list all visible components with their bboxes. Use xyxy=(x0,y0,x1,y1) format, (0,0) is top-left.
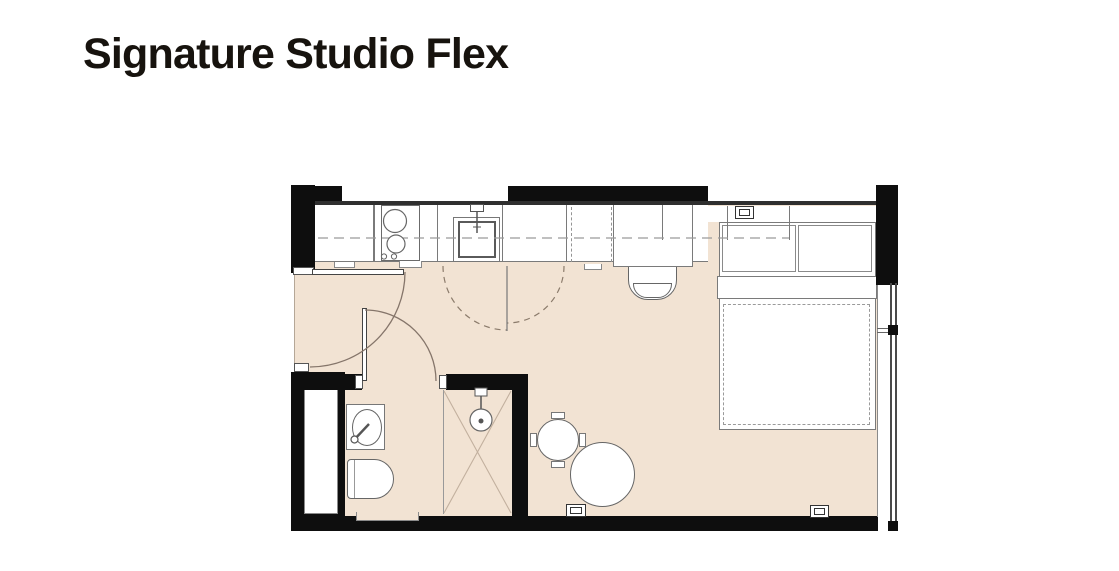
door-jamb xyxy=(294,363,309,372)
window-mullion xyxy=(888,325,898,335)
counter-tab xyxy=(399,261,422,268)
window-mullion xyxy=(888,521,898,531)
bathroom-wall-right xyxy=(512,374,528,520)
bathroom-wall-top-left xyxy=(291,374,362,390)
counter-divider xyxy=(373,205,375,262)
table-tab-north xyxy=(551,412,565,419)
door-jamb xyxy=(439,375,447,389)
table-tab-south xyxy=(551,461,565,468)
counter-divider xyxy=(437,205,438,262)
counter-divider xyxy=(566,205,567,262)
wall-column-top-left xyxy=(291,185,315,273)
entry-door-leaf xyxy=(312,269,404,275)
desk-divider xyxy=(662,205,663,240)
outlet-inner xyxy=(570,507,582,514)
overhead-shelf-edge xyxy=(727,206,728,240)
floorplan-page: Signature Studio Flex xyxy=(0,0,1119,571)
bed-wall-strip xyxy=(708,206,877,222)
outlet-inner xyxy=(814,508,825,515)
window-glazing xyxy=(890,283,897,531)
entry-threshold-line xyxy=(294,275,295,363)
tall-cabinet-dashed-edge xyxy=(571,207,572,262)
pouf xyxy=(570,442,635,507)
overhead-shelf-edge xyxy=(789,206,790,240)
wall-niche xyxy=(356,512,419,521)
washbasin xyxy=(352,409,382,446)
kitchen-sink-basin xyxy=(458,221,496,258)
cooktop xyxy=(381,205,420,261)
pillow-left xyxy=(722,225,796,272)
dining-table xyxy=(537,419,579,461)
wall-top-band-left xyxy=(313,186,342,201)
door-jamb xyxy=(293,267,314,275)
counter-divider xyxy=(502,205,503,262)
wall-column-top-right xyxy=(876,185,898,285)
bathroom-door-leaf xyxy=(362,308,367,381)
mattress-dashed-outline xyxy=(723,304,870,425)
outlet-inner xyxy=(739,209,750,216)
counter-tab xyxy=(334,262,355,268)
wall-top-band-right xyxy=(508,186,708,201)
tall-cabinet-dashed-edge xyxy=(611,207,612,262)
desk xyxy=(613,205,693,267)
window-inner-line xyxy=(877,285,878,517)
counter-tab xyxy=(584,264,602,270)
table-tab-west xyxy=(530,433,537,447)
service-shaft xyxy=(304,388,338,514)
table-tab-east xyxy=(579,433,586,447)
faucet-base xyxy=(470,204,484,212)
pillow-right xyxy=(798,225,872,272)
toilet-tank-line xyxy=(354,460,355,498)
duvet xyxy=(717,276,877,299)
page-title: Signature Studio Flex xyxy=(83,30,508,79)
